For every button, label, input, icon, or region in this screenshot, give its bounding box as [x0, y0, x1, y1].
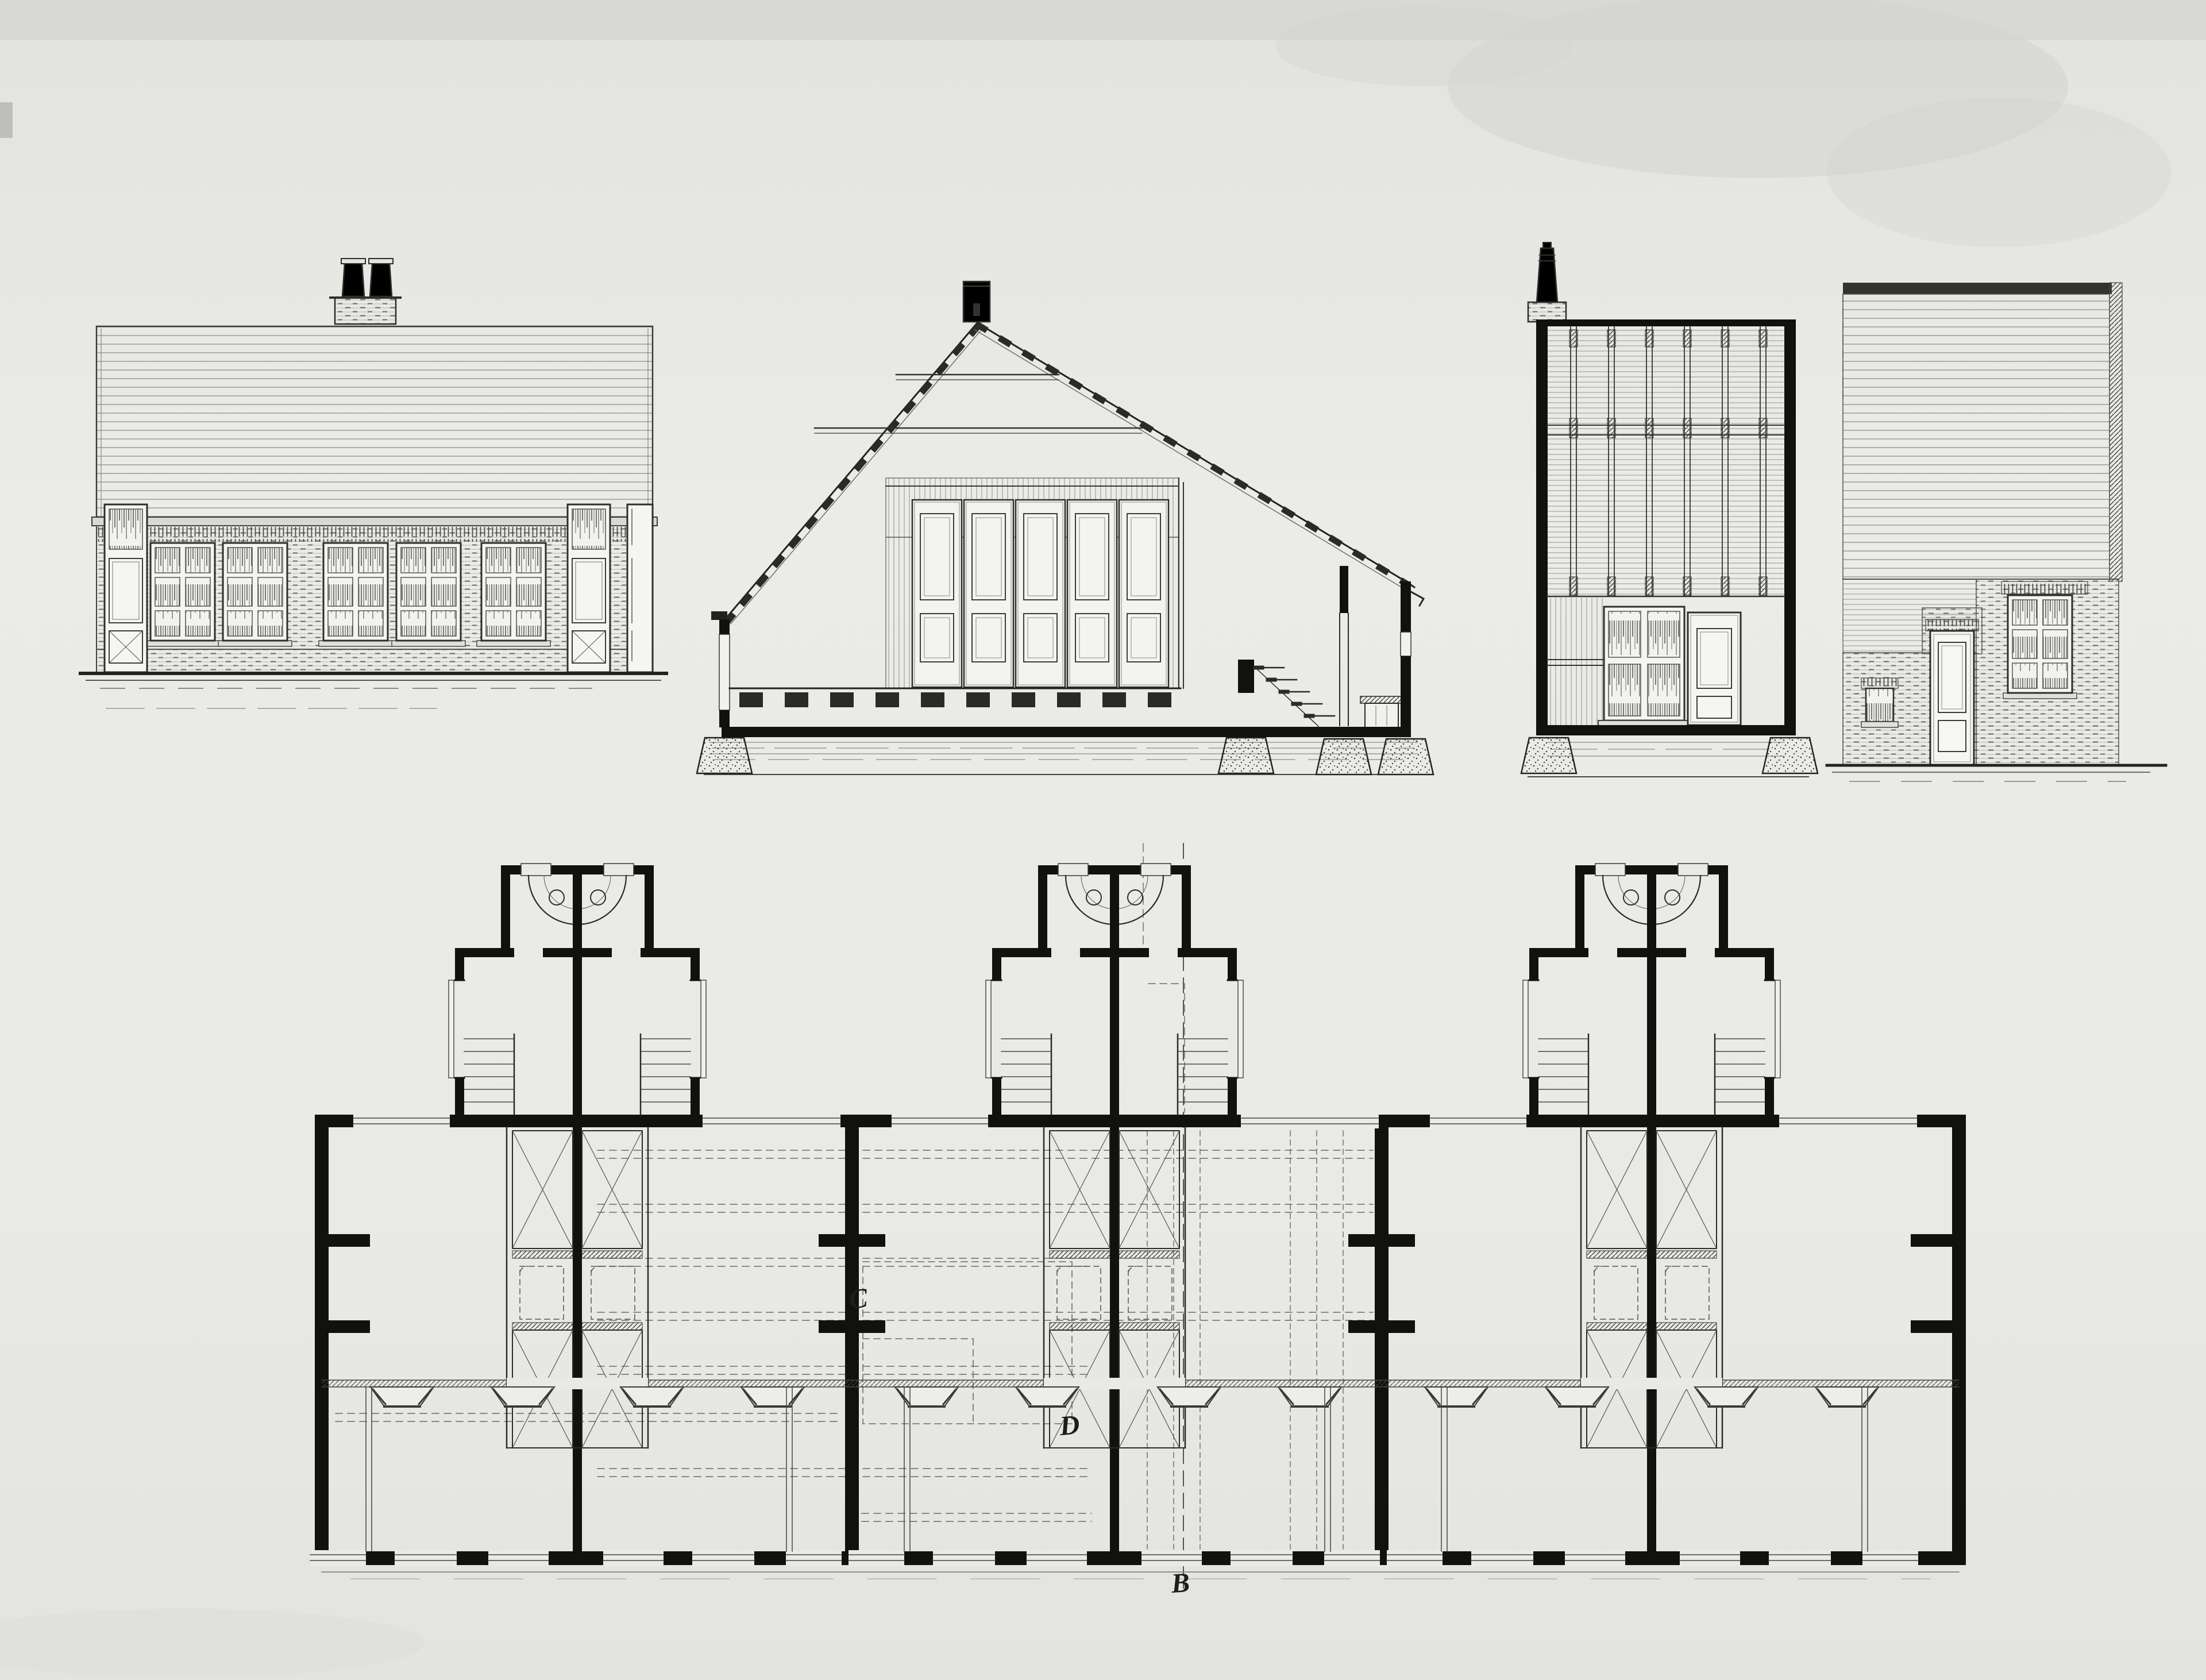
interior-window — [1598, 607, 1689, 727]
pair-wall-2 — [1375, 1127, 1389, 1552]
right-gable-wall — [1952, 1115, 1966, 1565]
door-right — [568, 504, 610, 672]
door-left — [105, 504, 147, 672]
corner-board — [2109, 283, 2122, 581]
top-plate — [1536, 319, 1796, 326]
drawing-front-elevation — [80, 259, 666, 708]
clapboard-upper — [1843, 294, 2109, 579]
boarded-wall — [1548, 596, 1603, 726]
window-5 — [477, 543, 550, 646]
storage-chest — [1360, 696, 1403, 727]
right-wall — [1784, 326, 1796, 729]
window-3 — [319, 543, 392, 646]
interior-door — [1688, 612, 1741, 725]
paper-stain — [1827, 98, 2172, 247]
window-1 — [146, 543, 219, 646]
footing-right — [1763, 738, 1818, 773]
section-letter-b: B — [1170, 1567, 1191, 1599]
eaves-block — [711, 611, 727, 620]
lower-interior — [1548, 596, 1741, 727]
sill-beam — [1536, 725, 1796, 735]
roof-boarded-face — [92, 326, 657, 526]
left-wall — [1536, 326, 1548, 729]
rear-door — [1922, 608, 1982, 765]
door-partial-right-edge — [627, 504, 653, 672]
footing-left — [1521, 738, 1576, 773]
pair-wall-1 — [845, 1127, 859, 1552]
cupboard-door-leaves — [912, 500, 1168, 687]
eaves-band — [1843, 283, 2112, 294]
rear-wall — [315, 1115, 1966, 1127]
section-letter-d: D — [1058, 1409, 1081, 1442]
window-2 — [218, 543, 292, 646]
scanned-sheet: C D B — [0, 0, 2206, 1680]
window-4 — [392, 543, 465, 646]
apex-chimney — [963, 282, 990, 322]
rear-wall-pier — [1238, 660, 1254, 693]
window-lintel — [2001, 581, 2088, 594]
small-window — [1861, 678, 1898, 727]
paper-stain — [1275, 6, 1574, 86]
paper-background — [0, 0, 2206, 1680]
sheet-svg: C D B — [0, 0, 2206, 1680]
left-gable-wall — [315, 1115, 329, 1565]
drawing-rear-elevation — [1827, 283, 2166, 781]
paper-edge-mark — [0, 102, 13, 138]
left-wall-section — [719, 619, 730, 727]
roof-underside — [1548, 326, 1784, 596]
ground-beam — [722, 727, 1411, 737]
